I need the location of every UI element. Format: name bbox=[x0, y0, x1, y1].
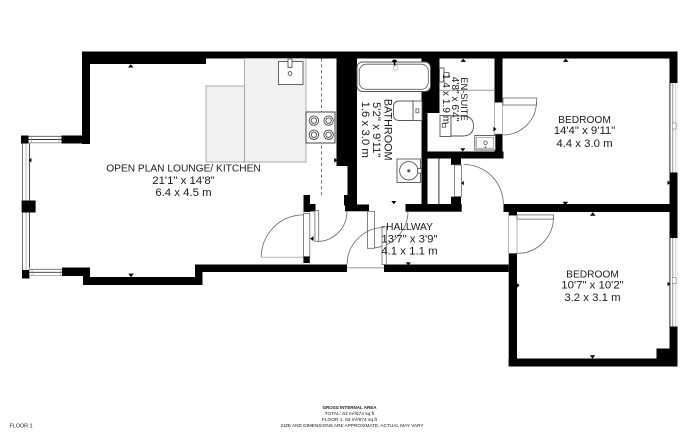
svg-text:13'7" x 3'9": 13'7" x 3'9" bbox=[381, 234, 437, 246]
svg-text:5'2" x 9'11": 5'2" x 9'11" bbox=[370, 102, 382, 157]
svg-text:SIZE AND DIMENSIONS ARE APPROX: SIZE AND DIMENSIONS ARE APPROXIMATE, ACT… bbox=[281, 423, 425, 428]
svg-text:1.6 x 3.0 m: 1.6 x 3.0 m bbox=[359, 102, 371, 158]
svg-text:6.4 x 4.5 m: 6.4 x 4.5 m bbox=[155, 187, 211, 199]
svg-text:GROSS INTERNAL AREA: GROSS INTERNAL AREA bbox=[322, 405, 377, 410]
svg-text:HALLWAY: HALLWAY bbox=[386, 222, 433, 233]
svg-text:3.2 x 3.1 m: 3.2 x 3.1 m bbox=[564, 292, 620, 304]
svg-text:BATHROOM: BATHROOM bbox=[382, 99, 394, 161]
svg-text:14'4" x 9'11": 14'4" x 9'11" bbox=[554, 125, 616, 137]
svg-text:21'1" x 14'8": 21'1" x 14'8" bbox=[152, 175, 214, 187]
svg-text:4.4 x 3.0 m: 4.4 x 3.0 m bbox=[556, 138, 612, 150]
svg-text:FLOOR 1: FLOOR 1 bbox=[10, 424, 33, 430]
svg-text:OPEN PLAN LOUNGE/ KITCHEN: OPEN PLAN LOUNGE/ KITCHEN bbox=[106, 164, 261, 175]
svg-text:4.1 x 1.1 m: 4.1 x 1.1 m bbox=[381, 246, 437, 258]
svg-text:10'7" x 10'2": 10'7" x 10'2" bbox=[561, 280, 623, 292]
svg-text:TOTAL: 63 m²/674 sq.ft: TOTAL: 63 m²/674 sq.ft bbox=[325, 411, 375, 417]
svg-text:1.4 x 1.9 m: 1.4 x 1.9 m bbox=[440, 74, 451, 124]
